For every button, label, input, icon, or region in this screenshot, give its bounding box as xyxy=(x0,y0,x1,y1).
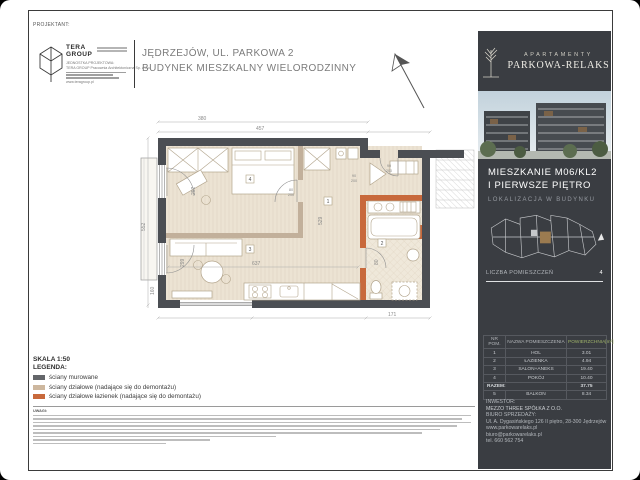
svg-text:90: 90 xyxy=(352,174,356,178)
svg-text:380: 380 xyxy=(198,116,207,122)
table-total-row: RAZEM: 37.75 xyxy=(484,382,607,390)
svg-text:200: 200 xyxy=(386,169,392,173)
svg-text:80: 80 xyxy=(289,188,293,192)
info-panel: APARTAMENTY PARKOWA-RELAKS MIESZKANIE M0… xyxy=(478,31,611,469)
building-locator-plan xyxy=(484,207,605,267)
designer-info: JEDNOSTKA PROJEKTOWA: TERA GROUP Pracown… xyxy=(66,61,152,85)
designer-name: TERA GROUP xyxy=(66,44,92,58)
rooms-count-row: LICZBA POMIESZCZEŃ 4 xyxy=(486,270,603,276)
apartment-heading: MIESZKANIE M06/KL2 I PIERWSZE PIĘTRO LOK… xyxy=(488,167,605,203)
notes-lines xyxy=(33,415,475,446)
svg-text:637: 637 xyxy=(252,261,261,267)
project-type: BUDYNEK MIESZKALNY WIELORODZINNY xyxy=(142,61,356,76)
legend-item: ściany działowe łazienek (nadające się d… xyxy=(33,393,201,400)
investor-block: INWESTOR: MEZZO THREE SPÓŁKA Z O.O. BIUR… xyxy=(486,399,607,445)
room-area-table: NR POM. NAZWA POMIESZCZENIA POWIERZCHNIA… xyxy=(483,335,607,400)
scale-label: SKALA 1:50 xyxy=(33,356,201,364)
legend-label: LEGENDA: xyxy=(33,364,201,372)
panel-divider xyxy=(486,281,603,282)
col-name: NAZWA POMIESZCZENIA xyxy=(506,336,567,349)
project-address: JĘDRZEJÓW, UL. PARKOWA 2 xyxy=(142,46,356,61)
svg-text:299: 299 xyxy=(180,258,186,267)
brand-logo: APARTAMENTY PARKOWA-RELAKS xyxy=(478,31,611,91)
svg-text:171: 171 xyxy=(388,312,397,318)
col-area: POWIERZCHNIA[m²] xyxy=(567,336,607,349)
document-title: JĘDRZEJÓW, UL. PARKOWA 2 BUDYNEK MIESZKA… xyxy=(142,46,356,76)
tera-logo-icon xyxy=(38,44,64,84)
designer-tagline-lines xyxy=(97,47,127,54)
projektant-label: PROJEKTANT: xyxy=(33,22,70,28)
legend: SKALA 1:50 LEGENDA: ściany murowane ścia… xyxy=(33,356,201,400)
notes-label: UWAGI: xyxy=(33,409,47,413)
rooms-count-value: 4 xyxy=(600,270,603,276)
designer-sub2: TERA GROUP Pracownia Architektoniczna Sp… xyxy=(66,66,152,71)
svg-text:457: 457 xyxy=(256,126,265,132)
balcony xyxy=(141,158,157,280)
svg-text:529: 529 xyxy=(318,216,324,225)
svg-text:1: 1 xyxy=(327,199,330,205)
apartment-floor: I PIERWSZE PIĘTRO xyxy=(488,180,605,193)
building-render-photo xyxy=(478,91,611,159)
table-header-row: NR POM. NAZWA POMIESZCZENIA POWIERZCHNIA… xyxy=(484,336,607,349)
svg-text:200: 200 xyxy=(288,193,294,197)
floor-plan: 380 457 552 160 171 637 529 292 299 80 8… xyxy=(132,103,480,365)
col-nr: NR POM. xyxy=(484,336,506,349)
svg-text:4: 4 xyxy=(249,177,252,183)
svg-text:80: 80 xyxy=(374,259,380,265)
staircase-area xyxy=(436,150,474,208)
table-row: 4 POKÓJ 10.40 xyxy=(484,374,607,382)
svg-text:292: 292 xyxy=(191,186,197,195)
svg-text:200: 200 xyxy=(351,179,357,183)
tree-icon xyxy=(480,44,502,78)
svg-text:90: 90 xyxy=(387,164,391,168)
brand-top-label: APARTAMENTY xyxy=(508,52,610,58)
svg-text:160: 160 xyxy=(150,286,156,295)
apartment-id: MIESZKANIE M06/KL2 xyxy=(488,167,605,180)
location-label: LOKALIZACJA W BUDYNKU xyxy=(488,197,605,203)
legend-item: ściany działowe (nadające się do demonta… xyxy=(33,384,201,391)
brand-name-label: PARKOWA-RELAKS xyxy=(508,60,610,71)
legend-item: ściany murowane xyxy=(33,374,201,381)
svg-text:2: 2 xyxy=(381,241,384,247)
table-row: 5 BALKON 8.34 xyxy=(484,391,607,399)
table-row: 2 ŁAZIENKA 4.94 xyxy=(484,357,607,365)
table-row: 3 SALON+ANEKS 19.40 xyxy=(484,366,607,374)
rooms-count-label: LICZBA POMIESZCZEŃ xyxy=(486,270,553,276)
svg-text:552: 552 xyxy=(141,222,147,231)
notes-divider xyxy=(33,406,475,407)
phone: tel. 660 562 754 xyxy=(486,438,607,445)
designer-website: www.teragroup.pl xyxy=(66,80,152,85)
header-divider xyxy=(134,40,135,88)
legend-swatch-partition xyxy=(33,385,45,390)
drawing-sheet: PROJEKTANT: TERA GROUP JEDNOSTKA PROJEKT… xyxy=(0,0,640,480)
legend-swatch-masonry xyxy=(33,375,45,380)
table-row: 1 HOL 3.01 xyxy=(484,349,607,357)
svg-text:3: 3 xyxy=(249,247,252,253)
legend-swatch-bathroom xyxy=(33,394,45,399)
